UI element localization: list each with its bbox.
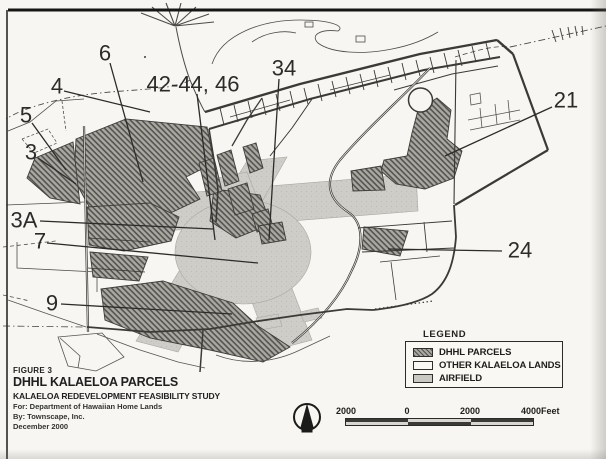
dhhl-parcels-swatch: [413, 348, 433, 357]
parcel-label-21: 21: [554, 88, 578, 113]
vegetation-icon: [141, 3, 214, 26]
scale-tick-label: 0: [404, 406, 409, 416]
scale-tick-label: 2000: [460, 406, 480, 416]
scale-segment: [346, 422, 408, 425]
legend-item-dhhl: DHHL PARCELS: [413, 346, 562, 359]
scale-unit-label: Feet: [541, 406, 560, 416]
parcel-label-24: 24: [508, 238, 532, 263]
parcel-label-7: 7: [34, 229, 46, 254]
dhhl-parcel-7: [90, 252, 148, 281]
legend-item-label: DHHL PARCELS: [439, 347, 511, 358]
dhhl-parcel-21-band: [351, 166, 385, 191]
scale-bar-row: [346, 422, 533, 425]
scale-segment: [471, 422, 533, 425]
legend-item-airfield: AIRFIELD: [413, 372, 562, 385]
prepared-for-line: For: Department of Hawaiian Home Lands: [13, 403, 220, 411]
date-line: December 2000: [13, 423, 220, 431]
parcel-label-42-44-46: 42-44, 46: [147, 72, 240, 97]
title-block: FIGURE 3 DHHL KALAELOA PARCELS KALAELOA …: [13, 367, 220, 431]
parcel-label-34: 34: [272, 56, 296, 81]
figure-number: FIGURE 3: [13, 367, 220, 375]
scale-tick-label: 2000: [336, 406, 356, 416]
north-boundary-road: [205, 40, 513, 112]
legend-item-label: OTHER KALAELOA LANDS: [439, 360, 561, 371]
parcel-label-3: 3: [25, 140, 37, 165]
parcel-leader-line: [64, 91, 150, 112]
legend-box: DHHL PARCELS OTHER KALAELOA LANDS AIRFIE…: [405, 341, 563, 388]
tank-circle: [409, 88, 433, 112]
parcel-label-4: 4: [51, 74, 63, 99]
prepared-by-line: By: Townscape, Inc.: [13, 413, 220, 421]
other-lands-swatch: [413, 361, 433, 370]
parcel-label-6: 6: [99, 41, 111, 66]
parcel-label-5: 5: [20, 103, 32, 128]
survey-bracket-lines: [17, 242, 97, 292]
north-arrow-icon: [294, 404, 320, 433]
figure-title: DHHL KALAELOA PARCELS: [13, 376, 220, 389]
parcel-label-9: 9: [46, 291, 58, 316]
scale-segment: [408, 422, 471, 425]
scale-bar: [345, 418, 534, 426]
scale-tick-label: 4000: [521, 406, 541, 416]
legend-item-label: AIRFIELD: [439, 373, 482, 384]
legend-item-other: OTHER KALAELOA LANDS: [413, 359, 562, 372]
figure-subtitle: KALAELOA REDEVELOPMENT FEASIBILITY STUDY: [13, 392, 220, 401]
dhhl-parcel-34: [258, 222, 286, 244]
building-outlines: [468, 93, 520, 130]
figure-3-map-page: 64533A7942-44, 46342124 FIGURE 3 DHHL KA…: [0, 0, 606, 459]
airfield-swatch: [413, 374, 433, 383]
legend-title: LEGEND: [423, 329, 466, 340]
